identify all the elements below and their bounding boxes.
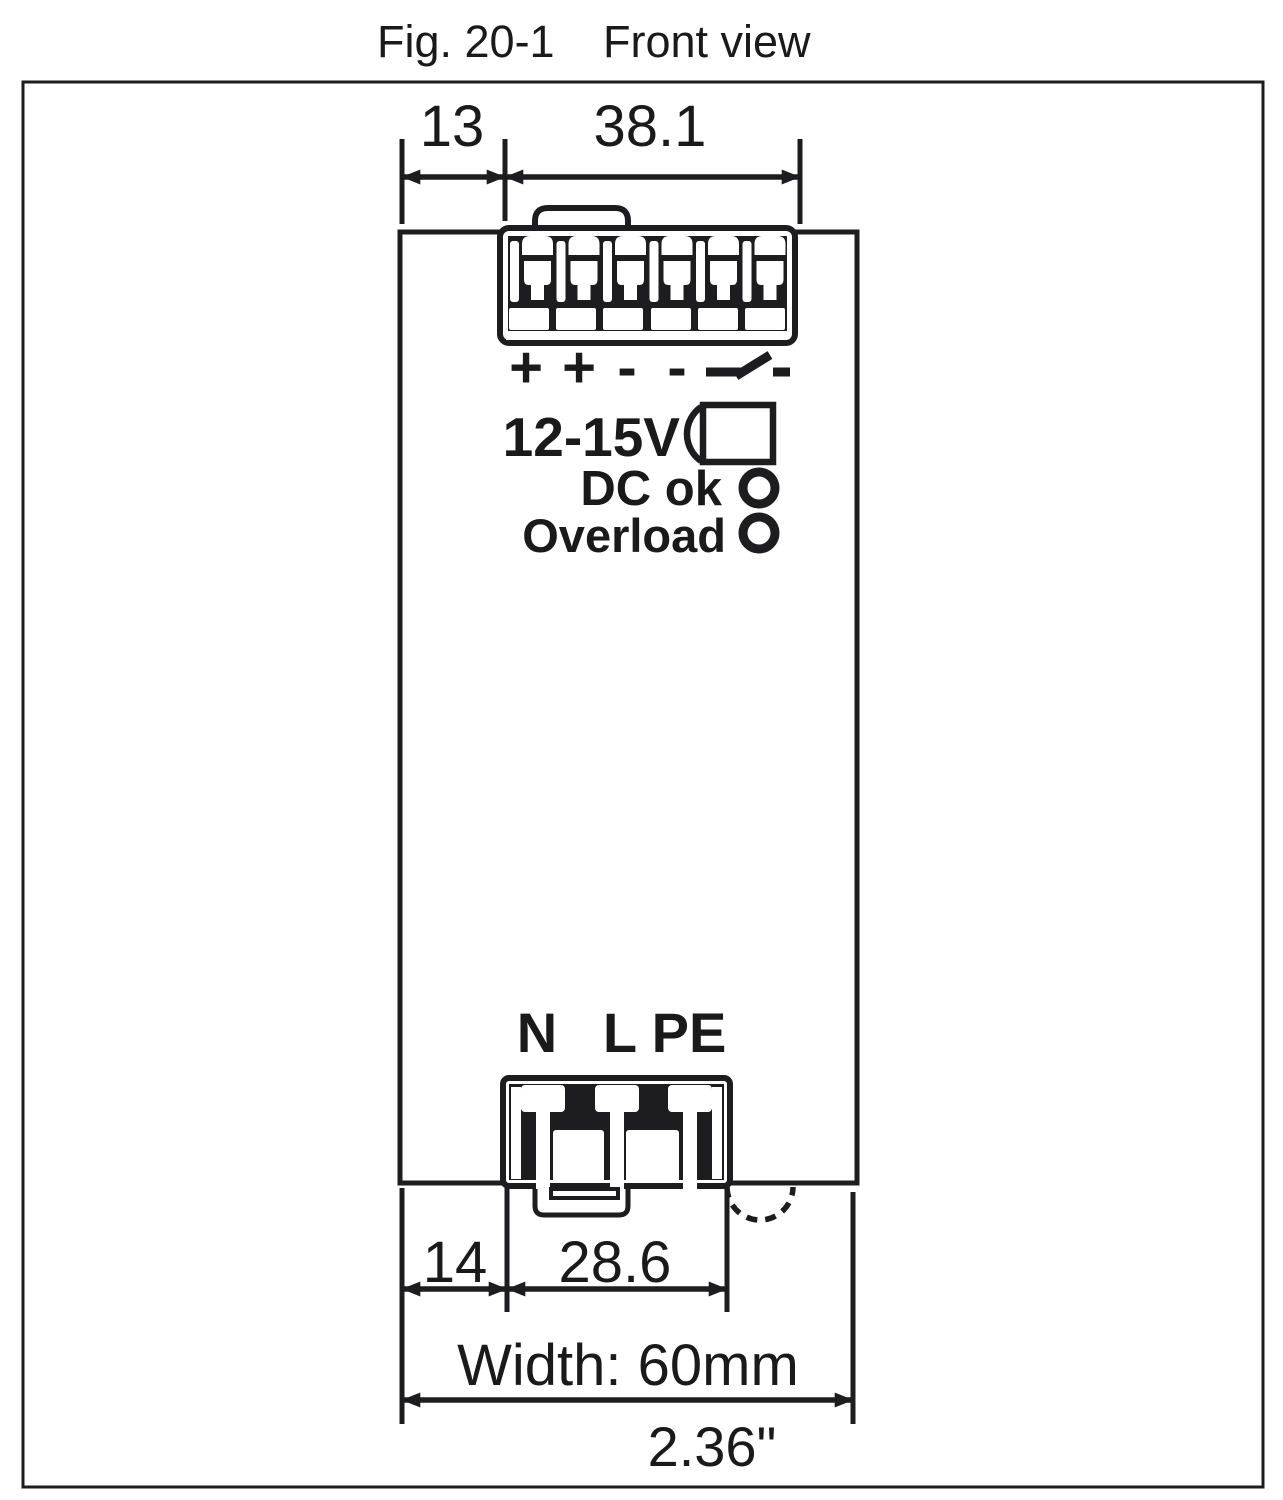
din-rail-notch-icon (727, 1187, 793, 1220)
connector-base-strip (506, 331, 787, 340)
overload-led-icon (743, 517, 775, 549)
minus-symbol: - (617, 335, 636, 400)
plus-symbol: + (562, 335, 596, 400)
overall-width-inches-label: 2.36" (648, 1415, 777, 1478)
dimension-bottom: 14 28.6 Width: 60mm 2.36" (402, 1188, 853, 1478)
overall-width-mm-label: Width: 60mm (457, 1333, 799, 1398)
status-leds: DC ok Overload (522, 462, 775, 562)
figure-title: Fig. 20-1 Front view (377, 16, 811, 67)
edge-slot (712, 1087, 722, 1179)
ac-input-terminal-block (503, 1078, 793, 1220)
dc-ok-led-icon (743, 472, 775, 504)
voltage-adjust: 12-15V (503, 405, 773, 468)
terminal-window (553, 1130, 604, 1183)
edge-slot (511, 1087, 521, 1179)
dc-ok-label: DC ok (580, 462, 722, 516)
overload-label: Overload (522, 509, 726, 562)
dc-output-terminal-block (500, 208, 795, 343)
voltage-range-label: 12-15V (503, 406, 681, 468)
earth-terminal-label: PE (652, 1001, 727, 1064)
view-name-label: Front view (603, 16, 811, 67)
dim-input-connector-value: 28.6 (559, 1230, 672, 1295)
plus-symbol: + (509, 335, 543, 400)
relay-contact-icon (706, 355, 790, 376)
figure-number-label: Fig. 20-1 (377, 16, 555, 67)
line-terminal-label: L (603, 1001, 637, 1064)
potentiometer-arc-icon (687, 407, 701, 461)
ac-input-labels: N L PE (517, 1001, 727, 1064)
dim-output-connector-value: 38.1 (594, 94, 707, 159)
dim-bottom-offset-value: 14 (423, 1230, 488, 1295)
terminal-window (626, 1130, 679, 1183)
potentiometer-adjuster[interactable] (703, 405, 773, 462)
minus-symbol: - (667, 335, 686, 400)
neutral-terminal-label: N (517, 1001, 557, 1064)
dim-top-offset-value: 13 (420, 94, 485, 159)
front-view-diagram: Fig. 20-1 Front view + + - - (0, 0, 1283, 1500)
front-view-figure: Fig. 20-1 Front view + + - - (0, 0, 1283, 1500)
input-connector-latch (535, 1189, 628, 1215)
dimension-top: 13 38.1 (402, 94, 800, 224)
